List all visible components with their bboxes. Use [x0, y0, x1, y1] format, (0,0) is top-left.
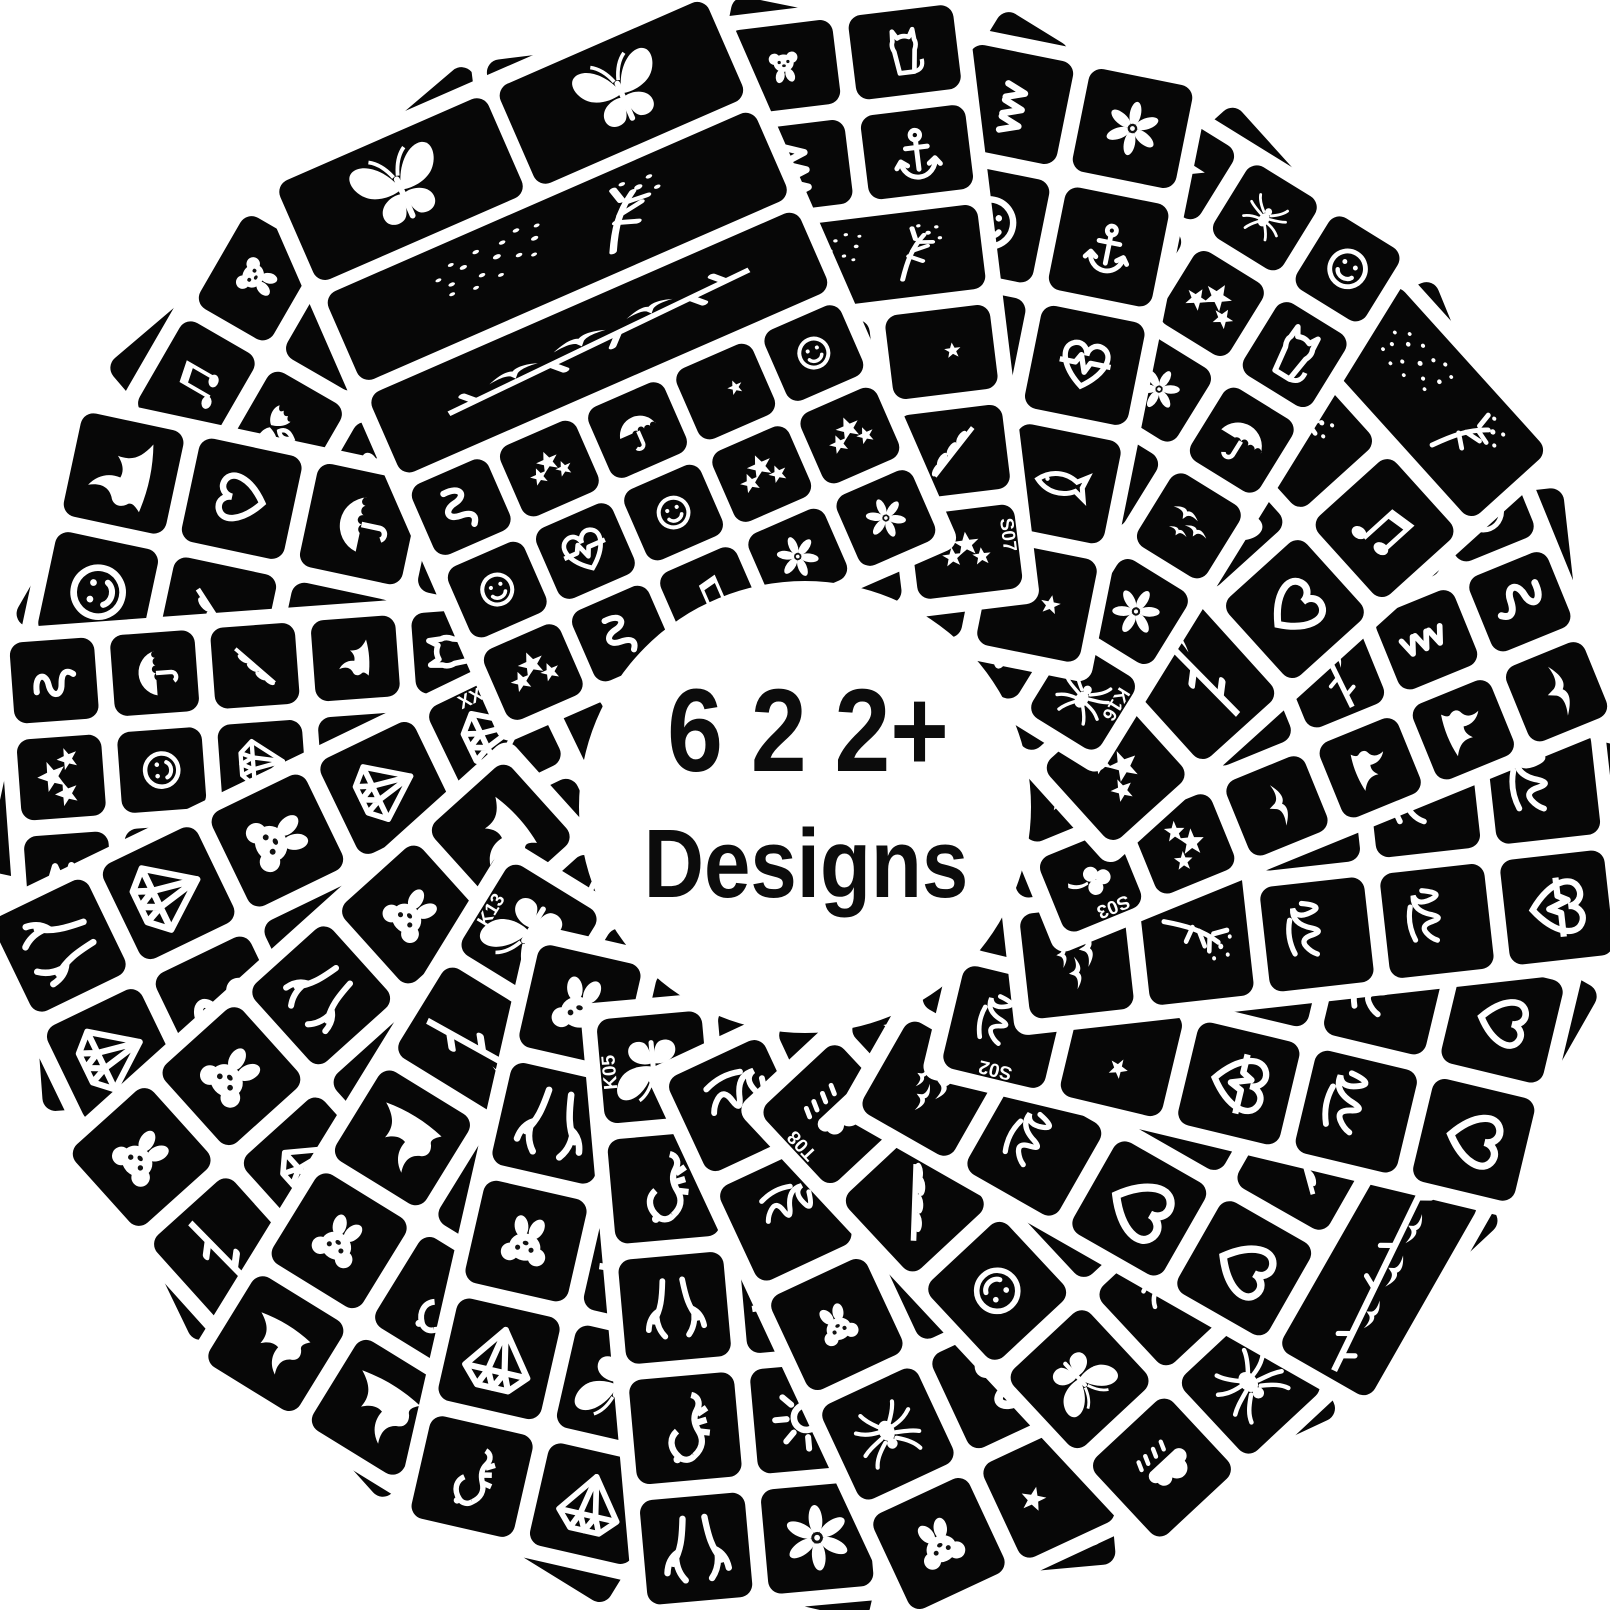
svg-text:6 2 2+: 6 2 2+	[667, 665, 949, 796]
svg-text:K05: K05	[598, 1054, 622, 1091]
svg-text:S07: S07	[995, 517, 1020, 553]
svg-text:Designs: Designs	[644, 810, 968, 918]
